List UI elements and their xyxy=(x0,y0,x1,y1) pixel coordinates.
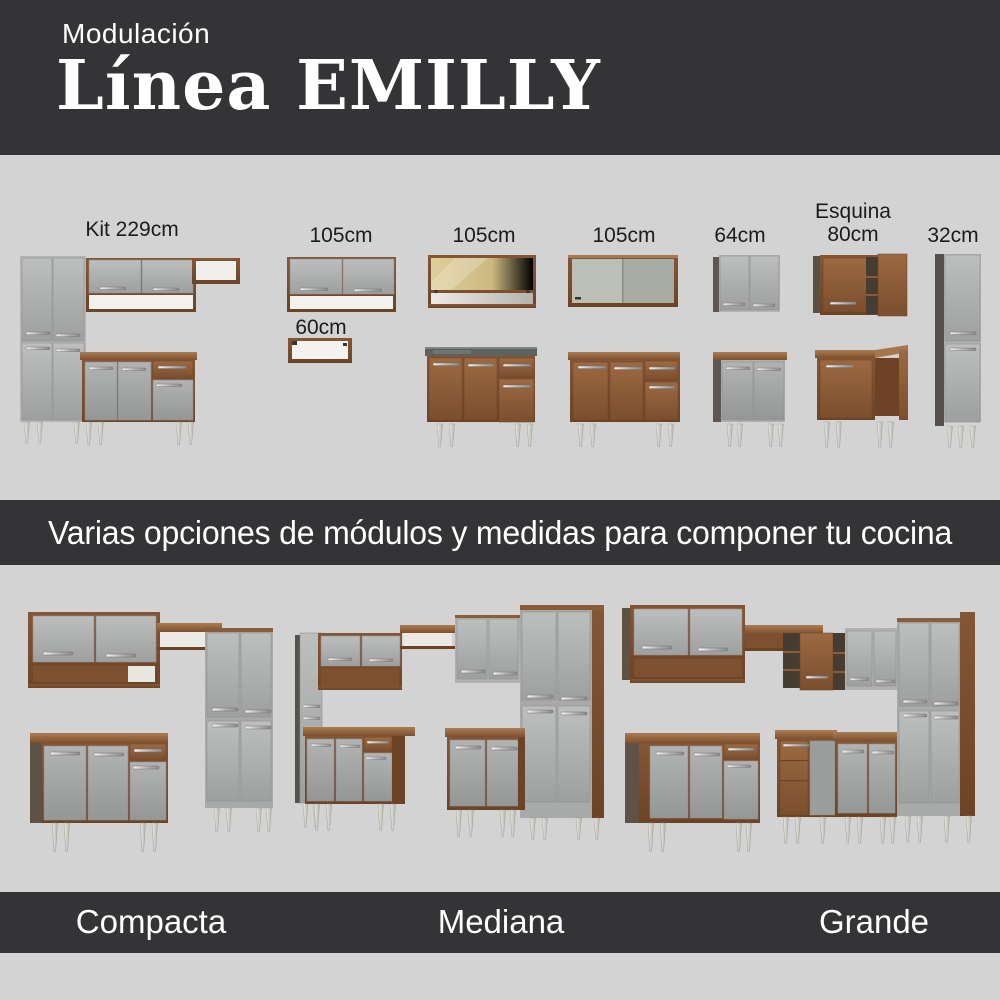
page-title: Línea EMILLY xyxy=(56,46,601,126)
header-banner: Modulación Línea EMILLY xyxy=(0,0,1000,155)
label-glass-105cm: 105cm xyxy=(452,224,515,247)
module-wall-64 xyxy=(713,255,780,312)
module-niche-60 xyxy=(288,338,352,363)
label-esquina-line1: Esquina xyxy=(815,200,891,223)
label-compacta: Compacta xyxy=(76,903,226,941)
label-wall-105cm: 105cm xyxy=(309,224,372,247)
module-corner-wall-80 xyxy=(813,254,907,316)
label-64cm: 64cm xyxy=(714,224,765,247)
label-open-105cm: 105cm xyxy=(592,224,655,247)
module-glass-105 xyxy=(428,255,536,308)
label-grande: Grande xyxy=(819,903,929,941)
label-32cm: 32cm xyxy=(927,224,978,247)
kitchen-grande xyxy=(622,605,975,852)
label-esquina-80cm: Esquina 80cm xyxy=(815,200,891,246)
kitchen-mediana xyxy=(295,605,604,840)
tagline-banner: Varias opciones de módulos y medidas par… xyxy=(0,500,1000,565)
module-wall-105 xyxy=(287,257,396,312)
label-esquina-line2: 80cm xyxy=(815,223,891,246)
label-kit-229cm: Kit 229cm xyxy=(85,218,178,241)
tagline-text: Varias opciones de módulos y medidas par… xyxy=(48,514,952,552)
module-sink-base-105 xyxy=(425,347,537,447)
module-base-64 xyxy=(713,352,787,447)
label-mediana: Mediana xyxy=(438,903,565,941)
module-kit-229cm xyxy=(20,256,240,445)
module-base-105 xyxy=(568,352,680,447)
module-tall-32 xyxy=(935,254,981,448)
label-niche-60cm: 60cm xyxy=(295,316,346,339)
kitchen-compacta xyxy=(28,612,273,852)
module-corner-base-80 xyxy=(815,345,908,447)
catalog-page: Modulación Línea EMILLY Kit 229cm 105cm … xyxy=(0,0,1000,1000)
module-open-105 xyxy=(568,255,678,307)
